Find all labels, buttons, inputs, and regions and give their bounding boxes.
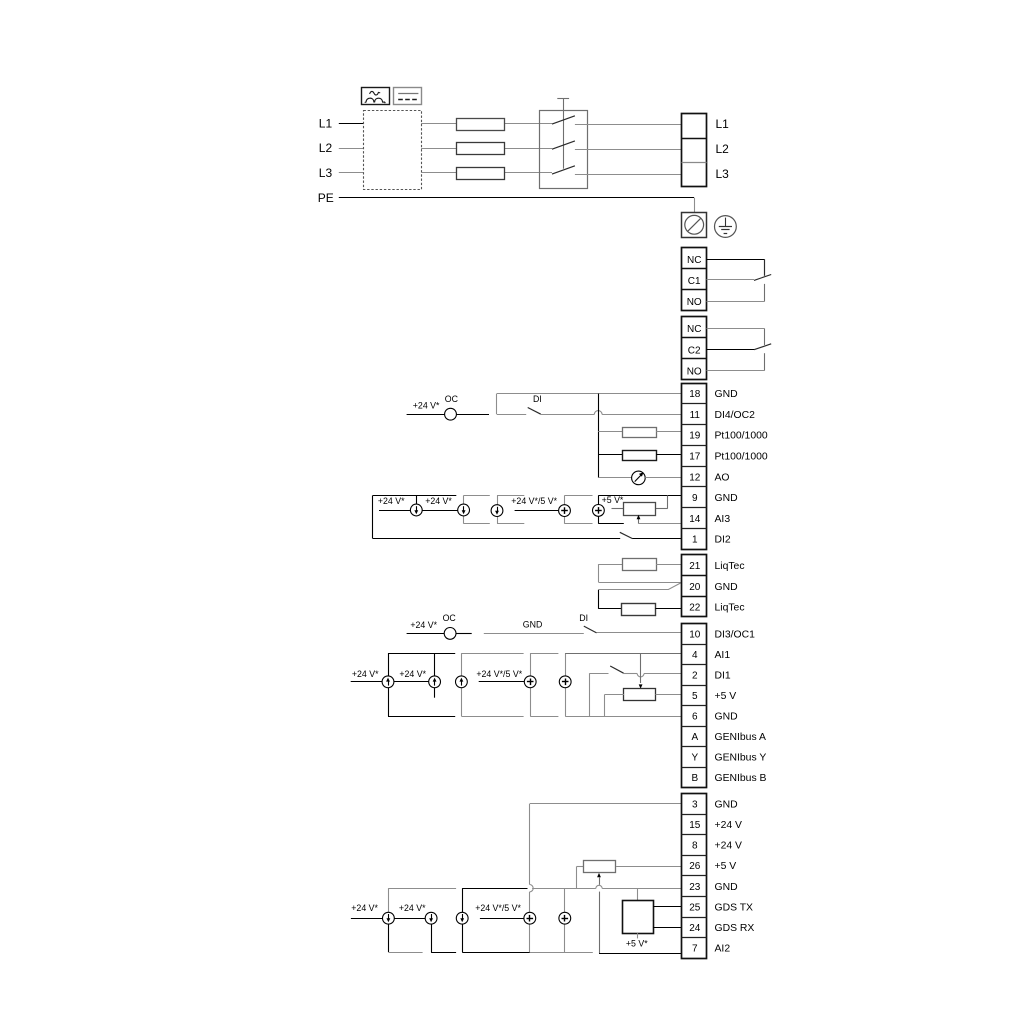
svg-text:3: 3 xyxy=(692,799,698,810)
svg-text:GND: GND xyxy=(715,799,738,810)
svg-text:GENIbus B: GENIbus B xyxy=(715,773,767,784)
svg-text:+24 V*/5 V*: +24 V*/5 V* xyxy=(511,496,557,506)
svg-text:4: 4 xyxy=(692,650,698,661)
svg-text:AI1: AI1 xyxy=(715,650,731,661)
svg-text:L3: L3 xyxy=(319,166,333,180)
svg-text:22: 22 xyxy=(689,603,701,614)
svg-text:+24 V*: +24 V* xyxy=(399,669,426,679)
svg-text:Y: Y xyxy=(691,753,698,764)
svg-text:L1: L1 xyxy=(319,116,333,130)
svg-text:11: 11 xyxy=(690,410,701,421)
svg-text:2: 2 xyxy=(692,671,698,682)
svg-text:18: 18 xyxy=(689,389,701,400)
svg-text:10: 10 xyxy=(689,629,701,640)
svg-text:L2: L2 xyxy=(716,142,730,156)
svg-text:B: B xyxy=(691,773,698,784)
svg-text:C1: C1 xyxy=(688,276,701,287)
svg-text:+24 V: +24 V xyxy=(715,841,743,852)
svg-text:Pt100/1000: Pt100/1000 xyxy=(715,431,768,442)
svg-text:C2: C2 xyxy=(688,345,701,356)
svg-text:8: 8 xyxy=(692,841,698,852)
svg-text:14: 14 xyxy=(689,514,701,525)
svg-text:+24 V*/5 V*: +24 V*/5 V* xyxy=(476,669,522,679)
svg-text:NO: NO xyxy=(687,366,702,377)
svg-text:21: 21 xyxy=(689,561,701,572)
svg-text:Pt100/1000: Pt100/1000 xyxy=(715,452,768,463)
svg-text:17: 17 xyxy=(689,452,701,463)
svg-text:19: 19 xyxy=(689,431,701,442)
svg-text:25: 25 xyxy=(689,902,701,913)
svg-text:DI4/OC2: DI4/OC2 xyxy=(715,410,756,421)
svg-text:12: 12 xyxy=(689,472,701,483)
svg-text:GND: GND xyxy=(715,582,738,593)
svg-text:AI3: AI3 xyxy=(715,514,731,525)
svg-text:+24 V: +24 V xyxy=(715,820,743,831)
svg-text:PE: PE xyxy=(318,191,334,205)
svg-text:DI: DI xyxy=(579,613,588,623)
svg-text:NC: NC xyxy=(687,324,701,335)
svg-text:+24 V*: +24 V* xyxy=(413,400,440,410)
svg-text:L2: L2 xyxy=(319,141,333,155)
svg-text:+24 V*: +24 V* xyxy=(352,669,379,679)
svg-text:15: 15 xyxy=(689,820,701,831)
svg-text:LiqTec: LiqTec xyxy=(715,603,745,614)
svg-text:1: 1 xyxy=(692,535,698,546)
svg-text:GND: GND xyxy=(715,712,738,723)
svg-text:GENIbus Y: GENIbus Y xyxy=(715,753,767,764)
svg-text:5: 5 xyxy=(692,691,698,702)
svg-text:+24 V*: +24 V* xyxy=(399,903,426,913)
svg-text:DI: DI xyxy=(533,394,542,404)
svg-text:AO: AO xyxy=(715,472,730,483)
svg-text:+5 V: +5 V xyxy=(715,861,737,872)
svg-text:GDS RX: GDS RX xyxy=(715,923,755,934)
svg-text:6: 6 xyxy=(692,712,698,723)
svg-text:23: 23 xyxy=(689,882,701,893)
svg-text:24: 24 xyxy=(689,923,701,934)
svg-text:+5 V: +5 V xyxy=(715,691,737,702)
svg-text:GDS TX: GDS TX xyxy=(715,902,754,913)
svg-text:+24 V*/5 V*: +24 V*/5 V* xyxy=(475,903,521,913)
svg-text:+24 V*: +24 V* xyxy=(410,620,437,630)
svg-text:L3: L3 xyxy=(716,167,730,181)
svg-text:DI2: DI2 xyxy=(715,535,731,546)
svg-text:+5 V*: +5 V* xyxy=(602,495,624,505)
svg-text:7: 7 xyxy=(692,944,698,955)
svg-text:GND: GND xyxy=(715,389,738,400)
svg-text:L1: L1 xyxy=(716,117,730,131)
svg-text:+5 V*: +5 V* xyxy=(626,939,648,949)
svg-text:GND: GND xyxy=(523,619,543,629)
svg-text:OC: OC xyxy=(443,613,457,623)
svg-text:DI1: DI1 xyxy=(715,671,731,682)
svg-text:NO: NO xyxy=(687,297,702,308)
svg-text:GND: GND xyxy=(715,493,738,504)
svg-text:+24 V*: +24 V* xyxy=(425,496,452,506)
svg-text:A: A xyxy=(691,732,698,743)
svg-text:GENIbus A: GENIbus A xyxy=(715,732,766,743)
svg-text:LiqTec: LiqTec xyxy=(715,561,745,572)
svg-text:26: 26 xyxy=(689,861,701,872)
svg-text:9: 9 xyxy=(692,493,698,504)
svg-text:GND: GND xyxy=(715,882,738,893)
svg-text:20: 20 xyxy=(689,582,701,593)
svg-text:AI2: AI2 xyxy=(715,944,731,955)
svg-text:NC: NC xyxy=(687,255,701,266)
svg-text:+24 V*: +24 V* xyxy=(378,496,405,506)
svg-text:DI3/OC1: DI3/OC1 xyxy=(715,629,756,640)
svg-text:+24 V*: +24 V* xyxy=(351,903,378,913)
svg-text:OC: OC xyxy=(445,394,459,404)
